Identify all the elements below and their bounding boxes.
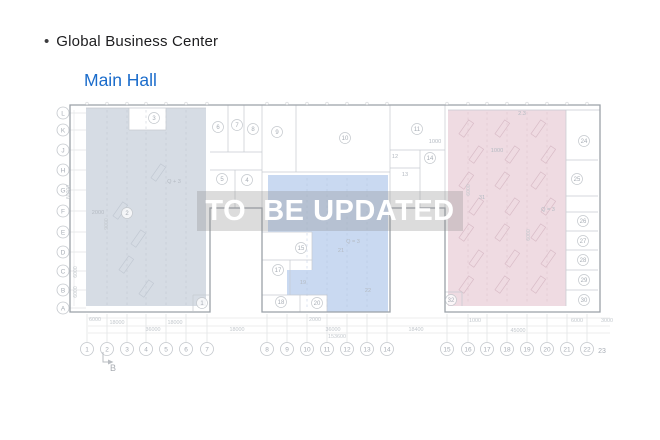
room-number: 29 [581, 278, 588, 284]
dim-label: 36000 [326, 327, 341, 333]
dim-label: 45000 [511, 328, 526, 334]
zone-label: 22 [365, 288, 371, 294]
room-number: 10 [342, 136, 349, 142]
grid-col-label: 4 [144, 347, 148, 354]
room-number: 24 [581, 139, 588, 145]
room-number: 15 [298, 246, 305, 252]
room-number: 18 [278, 300, 285, 306]
zone-label: 19 [300, 280, 306, 286]
dim-label: 153600 [328, 334, 346, 340]
dim-label: 18000 [168, 320, 183, 326]
grid-row-label: B [61, 287, 65, 294]
grid-col-label: 17 [483, 347, 491, 354]
room-number: 14 [427, 156, 434, 162]
grid-col-label: 20 [543, 347, 551, 354]
dim-label-vertical: 60000 [66, 185, 72, 200]
dim-label: 18000 [110, 320, 125, 326]
grid-col-label: 12 [343, 347, 351, 354]
grid-col-label: 21 [563, 347, 571, 354]
grid-col-label: 5 [164, 347, 168, 354]
zone-label: 13 [402, 172, 408, 178]
zone-label: Q = 3 [541, 207, 555, 213]
watermark-text: TO BE UPDATED [205, 195, 454, 228]
room-number: 20 [314, 301, 321, 307]
grid-row-label: D [61, 249, 66, 256]
grid-col-label: 6 [184, 347, 188, 354]
grid-col-label: 9 [285, 347, 289, 354]
zone-label: 1000 [491, 148, 503, 154]
grid-row-label: L [61, 110, 65, 117]
section-marker-label: B [110, 363, 116, 373]
room-number: 17 [275, 268, 282, 274]
dim-label: 6000 [89, 317, 101, 323]
grid-col-label-plain: 23 [598, 348, 606, 355]
grid-col-label: 16 [464, 347, 472, 354]
zone-label: 1000 [429, 139, 441, 145]
grid-col-label: 7 [205, 347, 209, 354]
grid-col-label: 2 [105, 347, 109, 354]
zone-label: 31 [479, 195, 485, 201]
dim-label: 6000 [571, 318, 583, 324]
grid-row-label: F [61, 208, 65, 215]
grid-col-label: 18 [503, 347, 511, 354]
room-number: 26 [580, 219, 587, 225]
floor-plan: LKJHGFEDCBA12345678910111213141516171819… [0, 0, 660, 440]
grid-row-label: A [61, 305, 66, 312]
grid-row-label: K [61, 127, 66, 134]
slide: • Global Business Center Main Hall LKJHG… [0, 0, 660, 440]
dim-label-vertical: 9000 [104, 218, 110, 230]
zone-label: 2.3 [518, 111, 526, 117]
grid-row-label: E [61, 229, 66, 236]
grid-col-label: 1 [85, 347, 89, 354]
dim-label-vertical: 6000 [526, 229, 532, 241]
room-number: 32 [448, 298, 455, 304]
room-number: 30 [581, 298, 588, 304]
grid-col-label: 11 [324, 347, 331, 354]
grid-col-label: 15 [443, 347, 451, 354]
zone-label: 2000 [92, 210, 104, 216]
dim-label: 2000 [309, 317, 321, 323]
zone-label: Q + 3 [167, 179, 181, 185]
dim-label: 1000 [469, 318, 481, 324]
room-number: 27 [580, 239, 587, 245]
grid-col-label: 19 [523, 347, 531, 354]
dim-label: 36000 [146, 327, 161, 333]
grid-row-label: G [60, 187, 65, 194]
room-number: 28 [580, 258, 587, 264]
grid-row-label: J [61, 147, 64, 154]
grid-row-label: H [61, 167, 66, 174]
grid-col-label: 8 [265, 347, 269, 354]
grid-col-label: 14 [383, 347, 391, 354]
grid-col-label: 10 [303, 347, 311, 354]
dim-label-vertical: 6000 [73, 286, 79, 298]
zone-label: 21 [338, 248, 344, 254]
zone-label: 12 [392, 154, 398, 160]
room-number: 11 [414, 127, 421, 133]
dim-label-vertical: 6000 [466, 184, 472, 196]
grid-col-label: 13 [363, 347, 371, 354]
grid-col-label: 22 [583, 347, 591, 354]
zone-label: Q = 3 [346, 239, 360, 245]
grid-row-label: C [61, 268, 66, 275]
grid-col-label: 3 [125, 347, 129, 354]
dim-label-vertical: 6000 [73, 266, 79, 278]
dim-label: 3000 [601, 318, 613, 324]
watermark-overlay: TO BE UPDATED [197, 191, 463, 231]
dim-label: 18400 [409, 327, 424, 333]
room-number: 25 [574, 177, 581, 183]
dim-label: 18000 [230, 327, 245, 333]
